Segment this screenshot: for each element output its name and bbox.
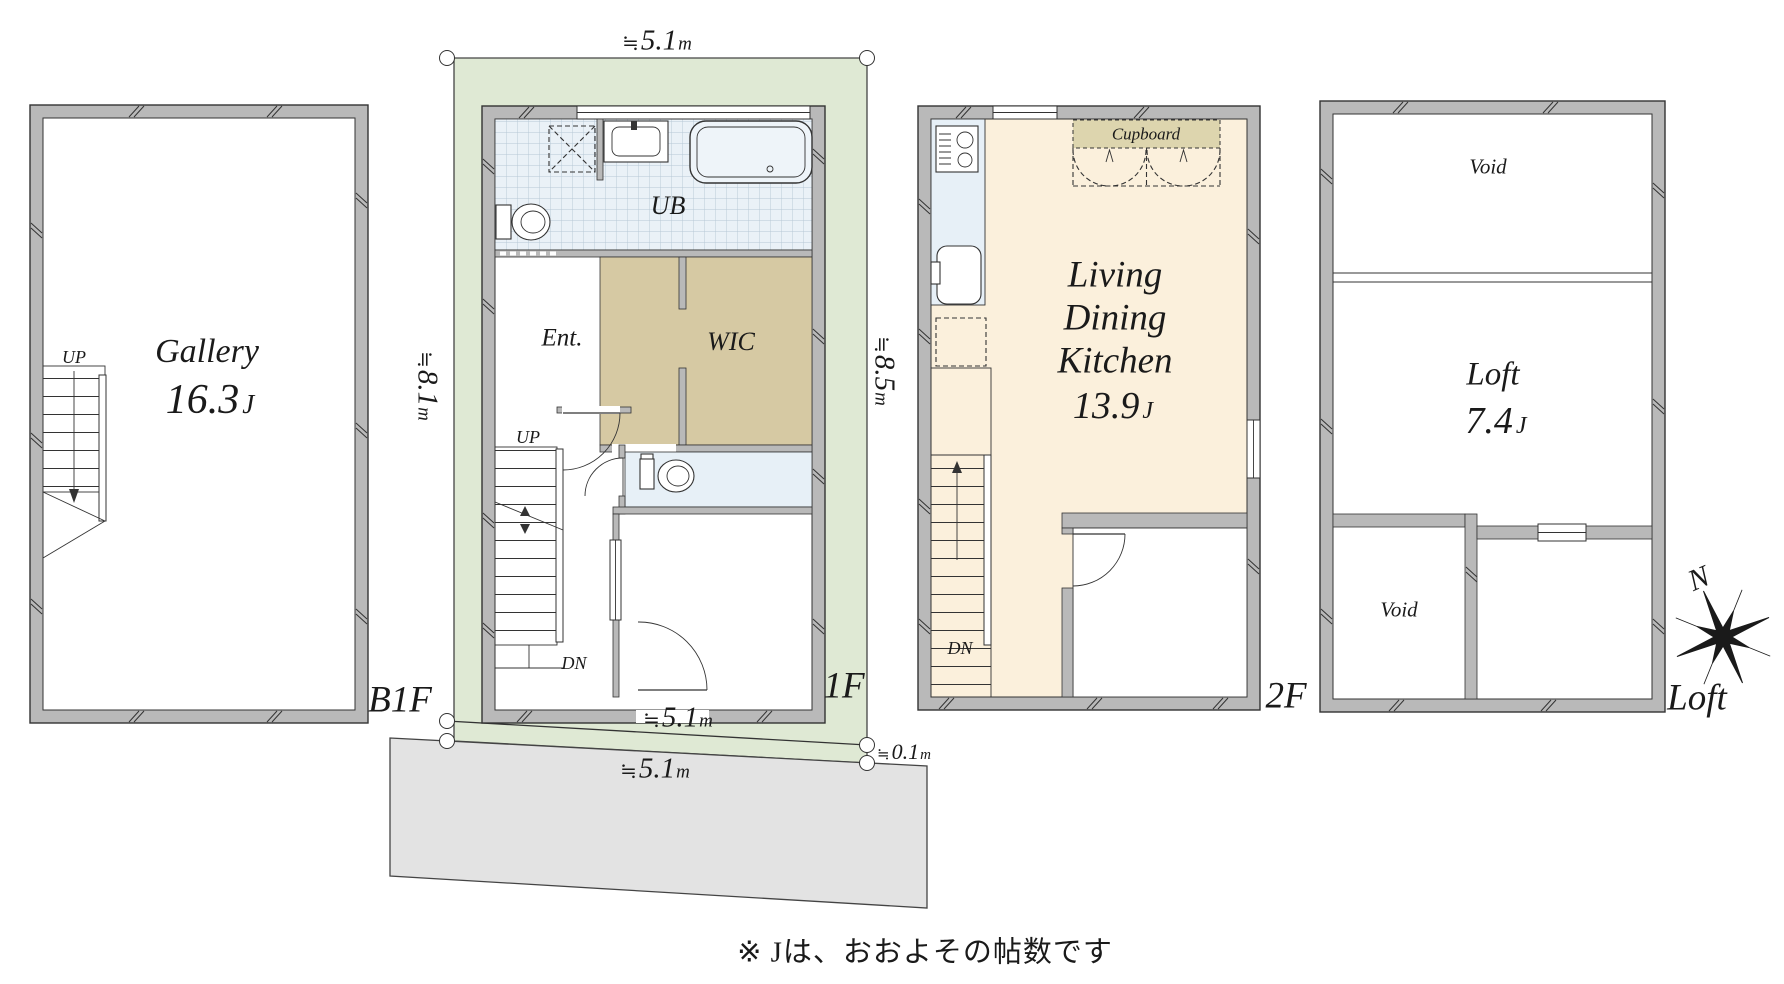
stove-icon [936,126,978,172]
2f-plan [918,106,1260,710]
loft-plan [1320,101,1665,712]
1f-plan [482,106,825,723]
vanity-sink-icon [604,121,668,162]
bathtub-icon [690,121,812,183]
1f-stairs [495,447,563,668]
wic-area [600,257,812,445]
compass-rose-icon [1657,571,1784,702]
kitchen-sink-icon [931,246,981,304]
toilet-icon [496,204,550,240]
floorplan-drawing [0,0,1784,984]
floorplan-sheet: Gallery 16.3J UP B1F UB Ent. WIC UP DN 1… [0,0,1784,984]
2f-stairs [931,455,991,697]
road-area [390,738,927,908]
b1f-plan [30,105,368,723]
